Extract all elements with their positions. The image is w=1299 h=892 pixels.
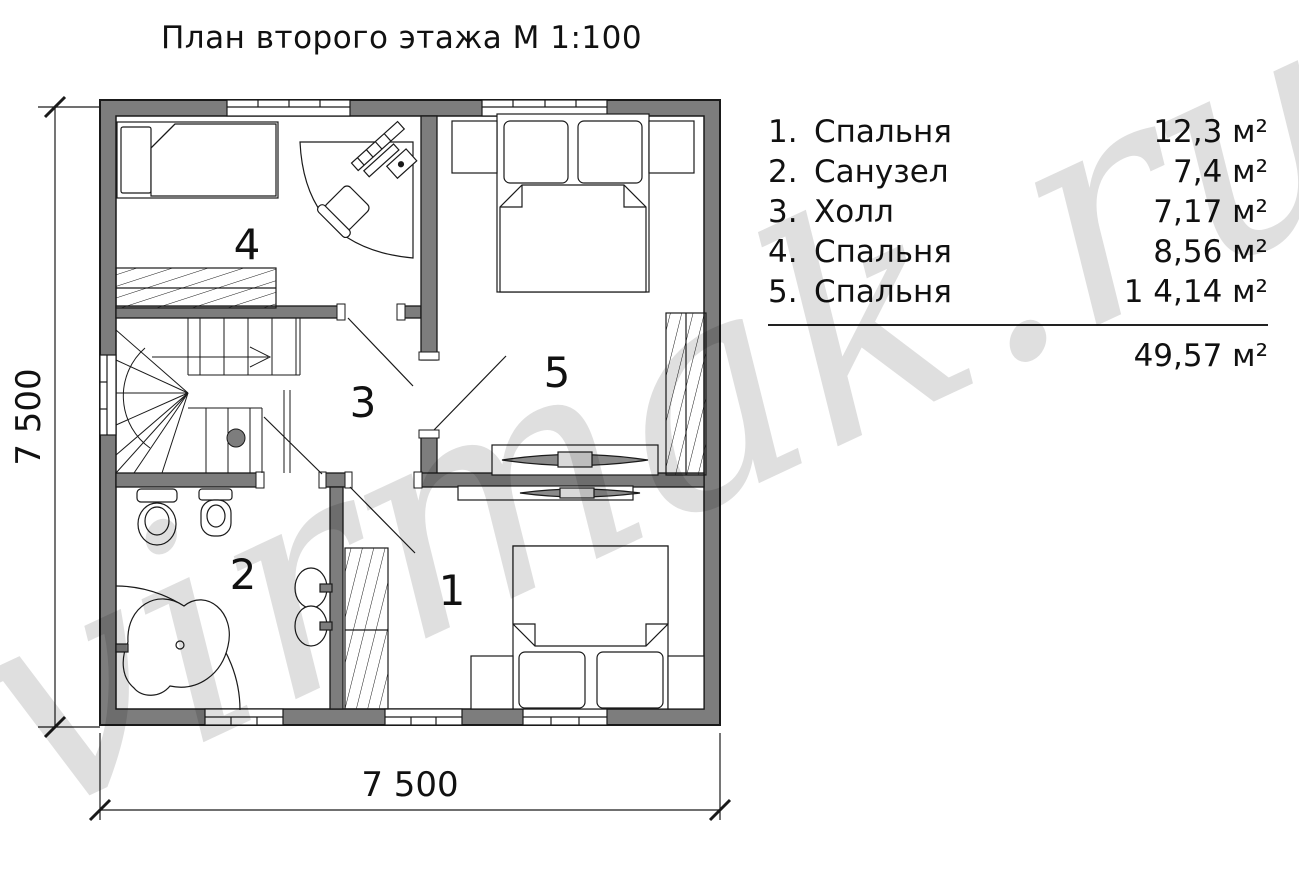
- legend-row: 5.Спальня1 4,14 м²: [768, 272, 1268, 312]
- window-icon: [100, 355, 116, 435]
- legend-room-name: Спальня: [814, 274, 952, 310]
- legend-row: 3.Холл7,17 м²: [768, 192, 1268, 232]
- nightstand: [649, 121, 694, 173]
- tv-stand: [458, 486, 640, 500]
- bidet: [199, 489, 232, 536]
- room-label-3: 3: [350, 378, 377, 427]
- double-bed: [497, 114, 649, 292]
- window-icon: [523, 709, 607, 725]
- legend-row: 1.Спальня12,3 м²: [768, 112, 1268, 152]
- window-icon: [205, 709, 283, 725]
- toilet: [137, 489, 177, 545]
- room-label-5: 5: [544, 348, 571, 397]
- legend-room-name: Спальня: [814, 114, 952, 150]
- room-label-4: 4: [234, 220, 261, 269]
- legend-area: 7,4 м²: [1173, 152, 1268, 192]
- legend-area: 7,17 м²: [1153, 192, 1268, 232]
- legend-room-name: Спальня: [814, 234, 952, 270]
- legend-number: 3.: [768, 192, 814, 232]
- legend-number: 1.: [768, 112, 814, 152]
- dimension-value-horizontal: 7 500: [361, 765, 458, 805]
- wardrobe: [666, 313, 706, 475]
- legend-number: 5.: [768, 272, 814, 312]
- room-label-1: 1: [439, 566, 466, 615]
- dimension-horizontal: 7 500: [90, 733, 730, 820]
- window-icon: [385, 709, 462, 725]
- wardrobe: [345, 548, 388, 709]
- window-icon: [227, 100, 350, 116]
- room-label-2: 2: [230, 550, 257, 599]
- newel-post: [227, 429, 245, 447]
- legend-number: 2.: [768, 152, 814, 192]
- dimension-vertical: 7 500: [9, 97, 100, 737]
- legend-number: 4.: [768, 232, 814, 272]
- tv-dresser: [492, 445, 658, 475]
- floor-plan-page: План второго этажа М 1:100: [0, 0, 1299, 833]
- wardrobe: [116, 268, 276, 308]
- nightstand: [452, 121, 497, 173]
- legend-area: 8,56 м²: [1153, 232, 1268, 272]
- legend-total-area: 49,57 м²: [1134, 336, 1268, 376]
- legend-area: 1 4,14 м²: [1124, 272, 1268, 312]
- legend-row: 2.Санузел7,4 м²: [768, 152, 1268, 192]
- nightstand: [668, 656, 704, 709]
- legend-area: 12,3 м²: [1153, 112, 1268, 152]
- nightstand: [471, 656, 513, 709]
- dimension-value-vertical: 7 500: [9, 368, 49, 465]
- legend-separator: [768, 324, 1268, 326]
- single-bed: [117, 122, 278, 198]
- legend-row: 4.Спальня8,56 м²: [768, 232, 1268, 272]
- double-bed: [513, 546, 668, 709]
- legend-room-name: Холл: [814, 194, 894, 230]
- legend-room-name: Санузел: [814, 154, 949, 190]
